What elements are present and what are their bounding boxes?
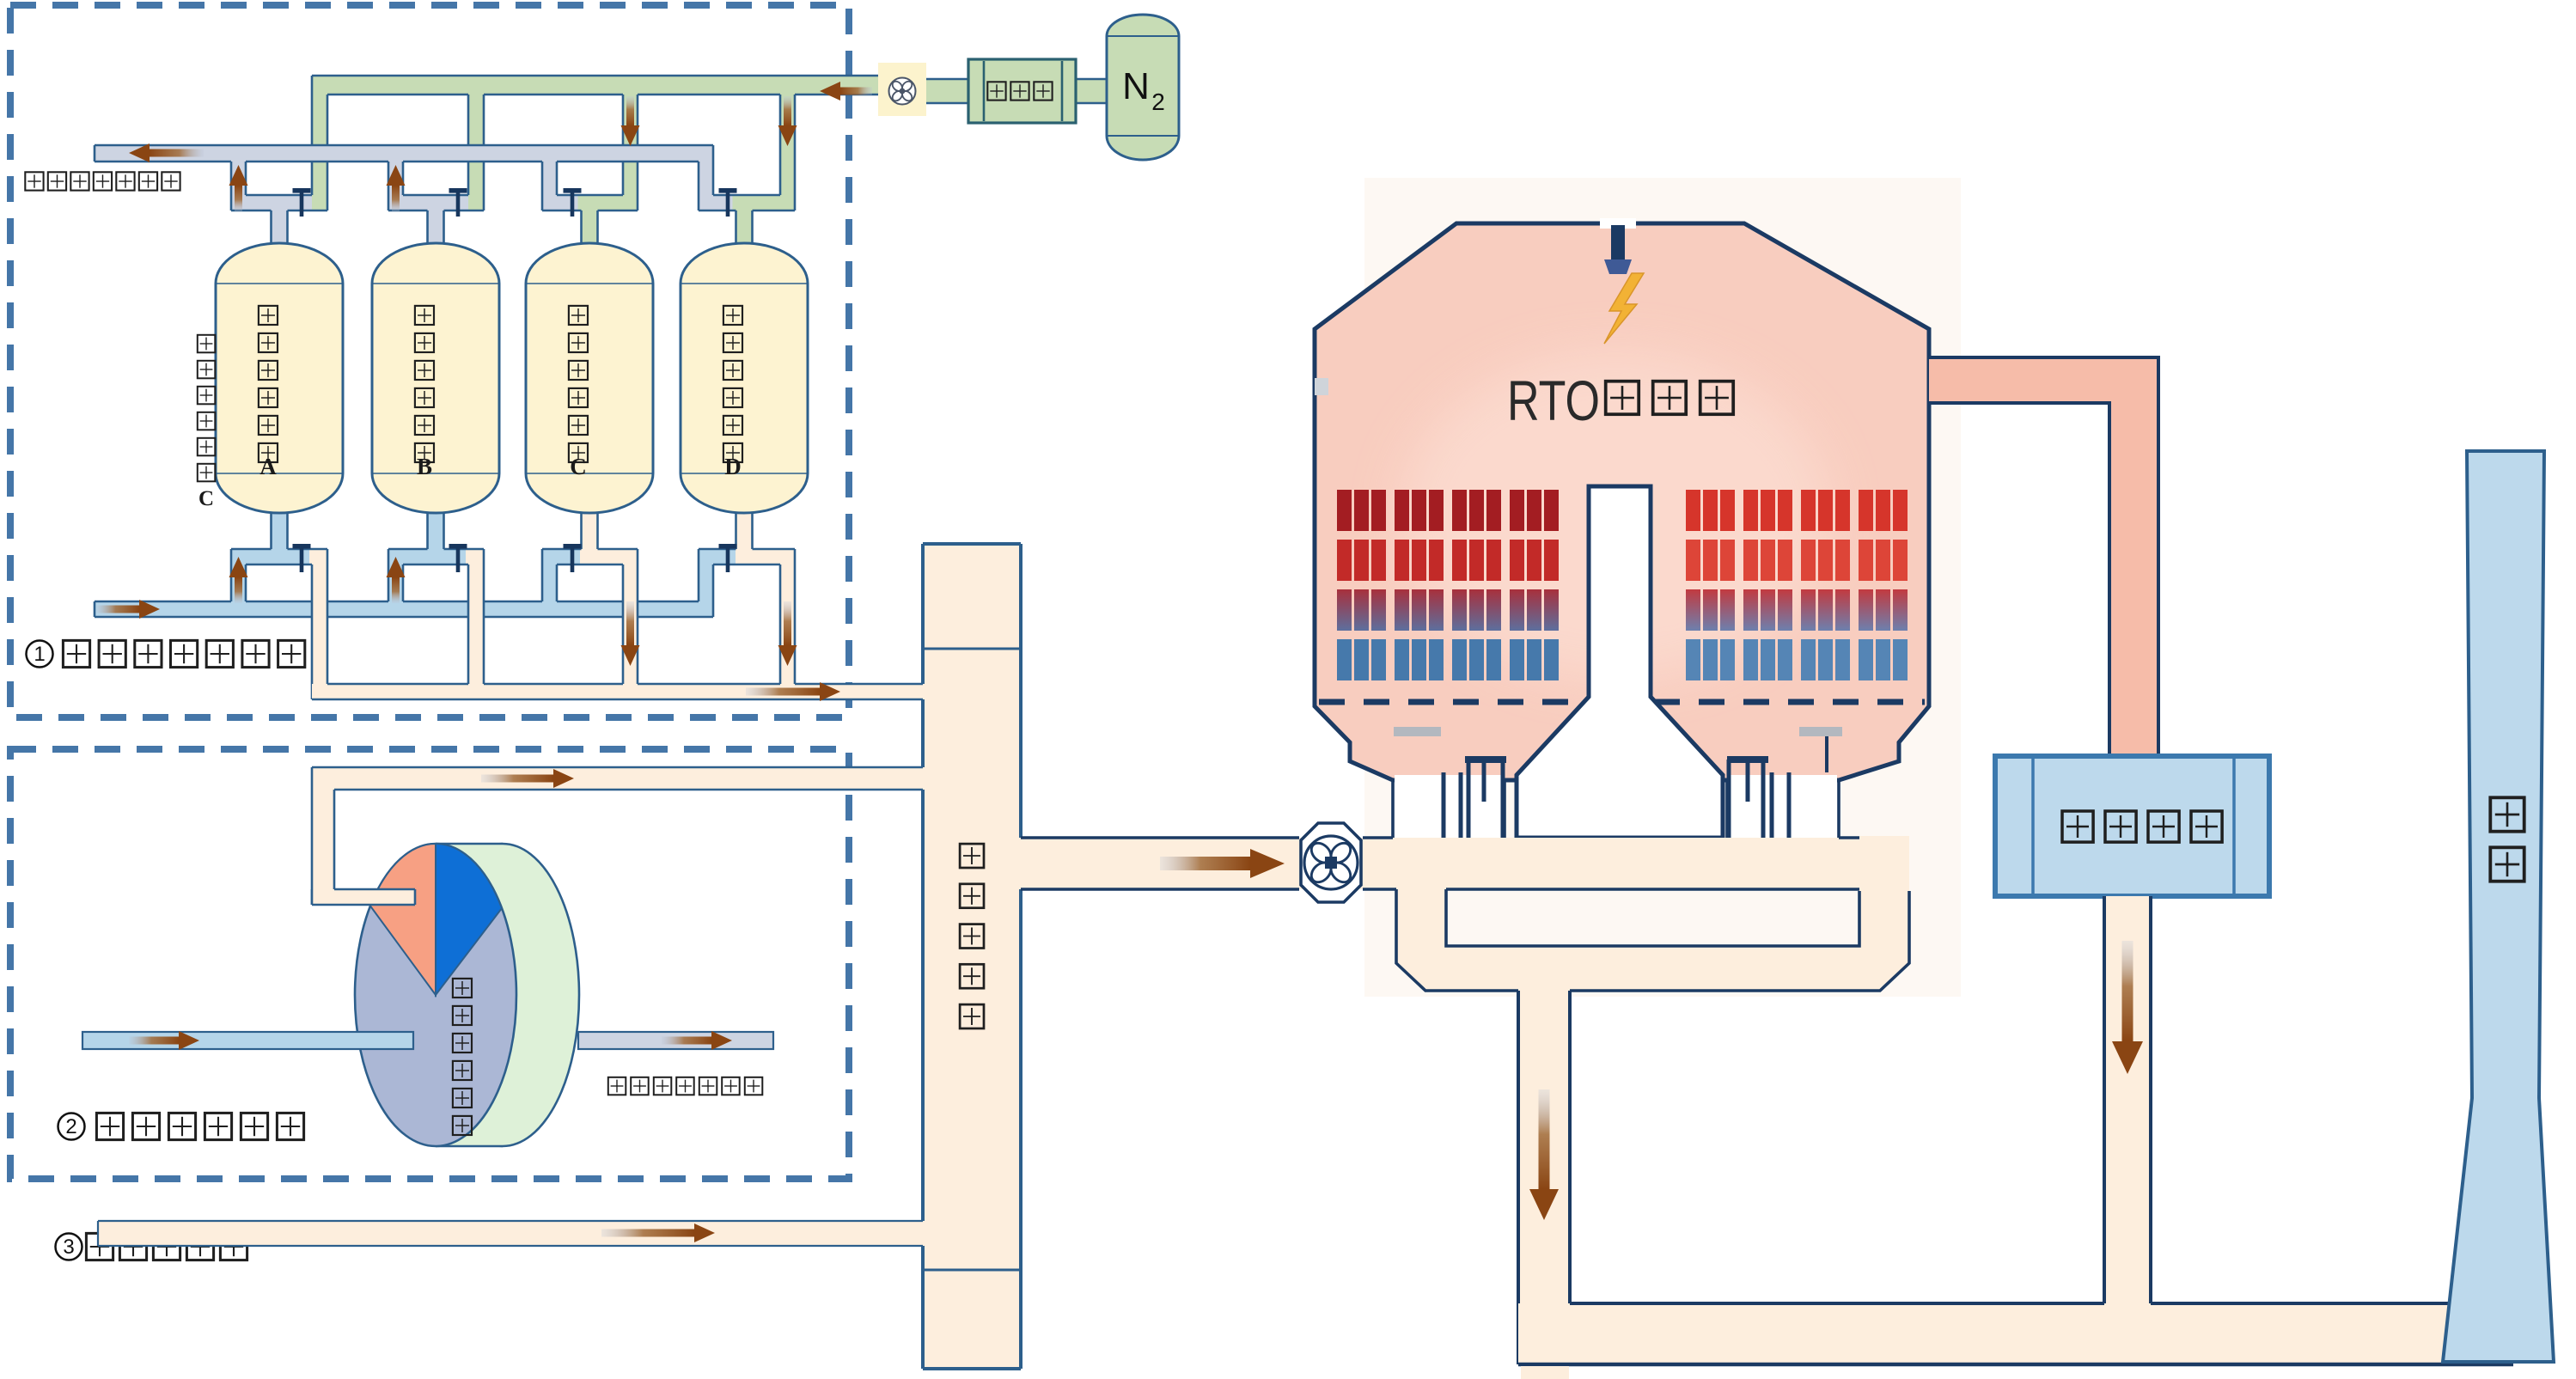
svg-text:N: N bbox=[1122, 65, 1150, 107]
svg-text:2: 2 bbox=[1151, 88, 1165, 115]
svg-text:RTO: RTO bbox=[1507, 369, 1600, 432]
svg-text:B: B bbox=[417, 454, 432, 479]
svg-text:2: 2 bbox=[65, 1115, 76, 1138]
svg-text:C: C bbox=[198, 487, 214, 510]
svg-text:3: 3 bbox=[63, 1236, 74, 1259]
svg-text:D: D bbox=[724, 454, 742, 479]
svg-text:1: 1 bbox=[34, 643, 45, 666]
svg-text:C: C bbox=[570, 454, 587, 479]
svg-text:A: A bbox=[259, 454, 277, 479]
